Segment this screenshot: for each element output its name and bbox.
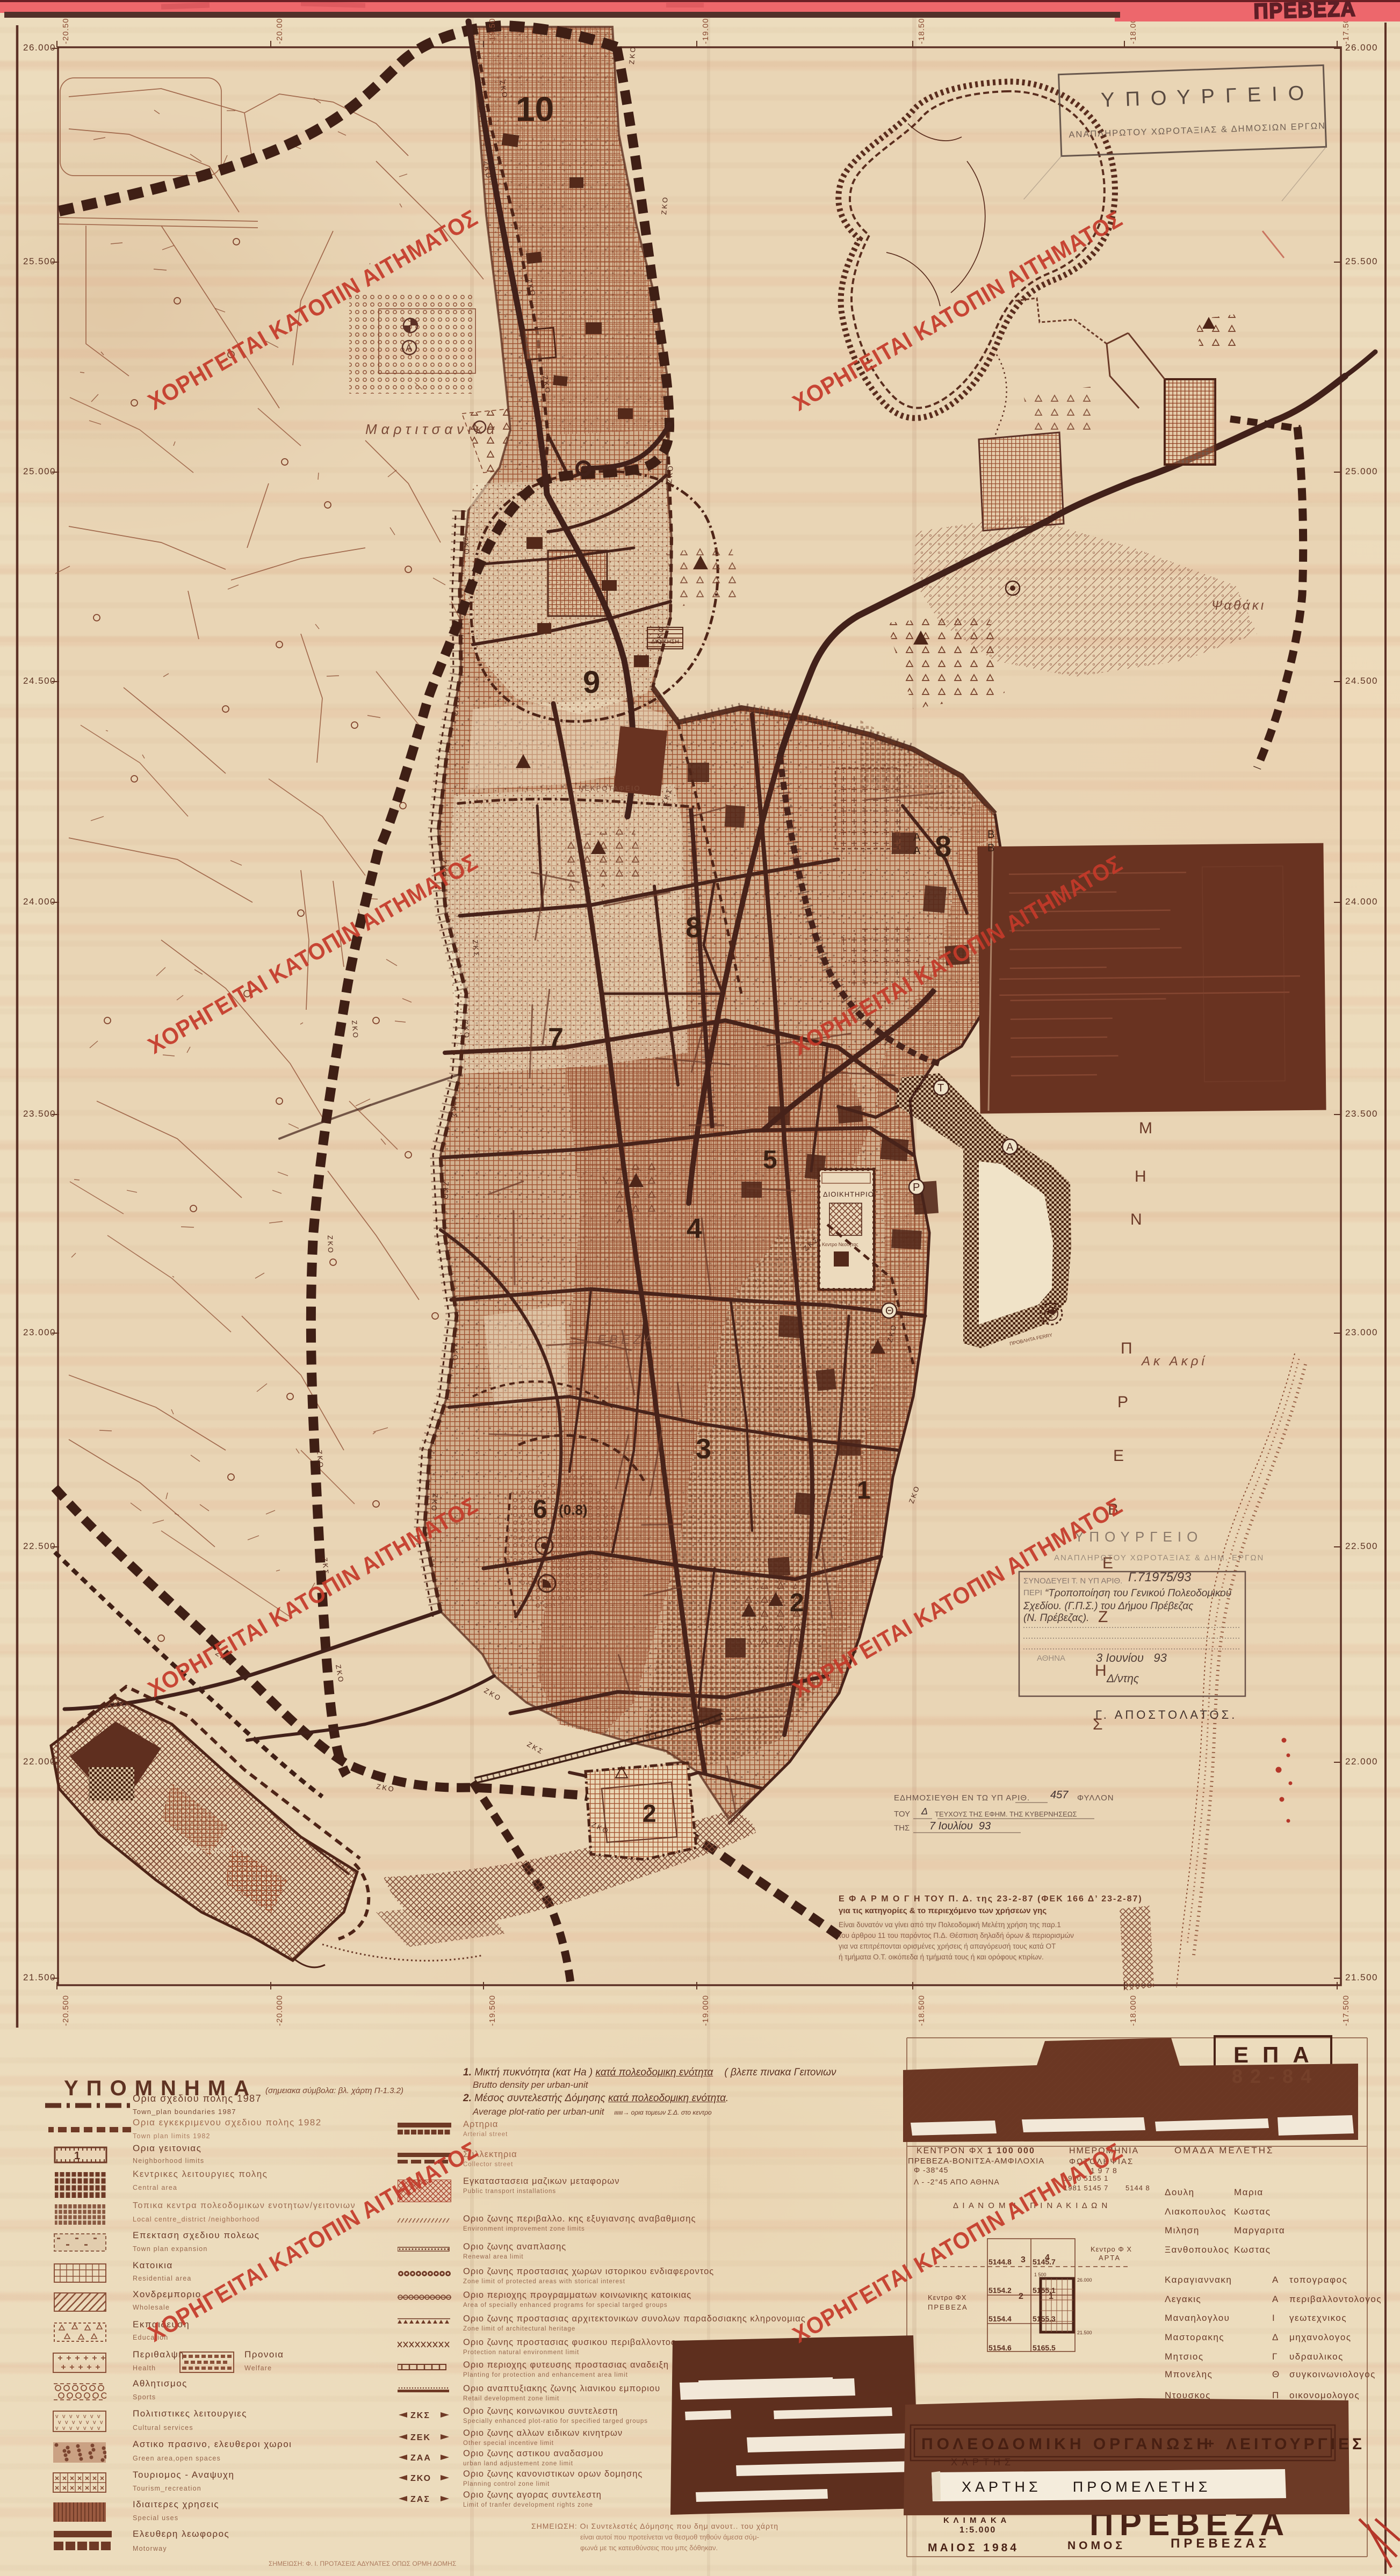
svg-text:v: v — [65, 2419, 68, 2426]
svg-text:26.000: 26.000 — [1077, 2277, 1092, 2283]
svg-text:v: v — [76, 2425, 80, 2432]
svg-text:v: v — [58, 2419, 61, 2426]
svg-text:ΠΟΛΕΟΔΟΜΙΚΗ ΟΡΓΑΝΩΣΗ: ΠΟΛΕΟΔΟΜΙΚΗ ΟΡΓΑΝΩΣΗ — [921, 2435, 1212, 2453]
svg-text:2: 2 — [1019, 2292, 1023, 2301]
svg-text:ΑΡΤΑ: ΑΡΤΑ — [1099, 2254, 1121, 2262]
svg-text:5165.5: 5165.5 — [1033, 2343, 1056, 2352]
svg-text:v: v — [72, 2419, 75, 2426]
svg-text:1: 1 — [74, 2150, 80, 2162]
svg-text:82-84: 82-84 — [1232, 2065, 1319, 2087]
svg-text:3: 3 — [1021, 2255, 1026, 2264]
svg-text:Κεντρο ΦΧ: Κεντρο ΦΧ — [928, 2293, 966, 2302]
svg-text:v: v — [100, 2419, 103, 2426]
svg-text:21.500: 21.500 — [1077, 2330, 1092, 2335]
svg-text:ΖΚΟ: ΖΚΟ — [410, 2474, 431, 2483]
svg-text:5154.2: 5154.2 — [988, 2286, 1012, 2295]
svg-text:+: + — [1206, 2435, 1216, 2451]
svg-text:v: v — [93, 2419, 96, 2426]
svg-text:5145.7: 5145.7 — [1033, 2257, 1056, 2266]
svg-text:1 500: 1 500 — [1034, 2272, 1047, 2277]
svg-text:ΧΑΡΤΗΣ ΠΡΟΜΕΛΕΤΗΣ: ΧΑΡΤΗΣ ΠΡΟΜΕΛΕΤΗΣ — [962, 2479, 1211, 2495]
svg-text:ΧΑΡΤΗΣ: ΧΑΡΤΗΣ — [951, 2457, 1015, 2468]
svg-text:5154.6: 5154.6 — [988, 2343, 1012, 2352]
svg-text:v: v — [97, 2425, 100, 2432]
svg-text:v: v — [69, 2425, 73, 2432]
svg-text:5144.8: 5144.8 — [988, 2257, 1012, 2266]
svg-text:ΖΕΚ: ΖΕΚ — [410, 2433, 431, 2442]
svg-text:v: v — [86, 2419, 89, 2426]
svg-text:ΕΠΑ: ΕΠΑ — [1233, 2042, 1323, 2067]
svg-text:ΖΑΑ: ΖΑΑ — [410, 2454, 431, 2463]
svg-text:v: v — [90, 2425, 93, 2432]
svg-text:1: 1 — [1049, 2292, 1053, 2301]
svg-text:ΠΡΕΒΕΖΑ: ΠΡΕΒΕΖΑ — [928, 2303, 968, 2311]
svg-text:ΖΚΣ: ΖΚΣ — [410, 2411, 430, 2420]
svg-text:ΖΑΣ: ΖΑΣ — [410, 2495, 430, 2504]
svg-text:v: v — [79, 2419, 82, 2426]
svg-text:v: v — [83, 2425, 86, 2432]
svg-text:ΛΕΙΤΟΥΡΓΙΕΣ: ΛΕΙΤΟΥΡΓΙΕΣ — [1226, 2435, 1365, 2453]
svg-text:ΠΡΕΒΕΖΑ: ΠΡΕΒΕΖΑ — [1253, 0, 1356, 24]
svg-text:4: 4 — [1045, 2253, 1050, 2262]
svg-text:v: v — [62, 2425, 66, 2432]
svg-text:v: v — [55, 2425, 59, 2432]
svg-text:5154.4: 5154.4 — [988, 2314, 1012, 2323]
svg-text:Κεντρο Φ Χ: Κεντρο Φ Χ — [1091, 2245, 1132, 2253]
svg-text:5155.3: 5155.3 — [1033, 2314, 1056, 2323]
